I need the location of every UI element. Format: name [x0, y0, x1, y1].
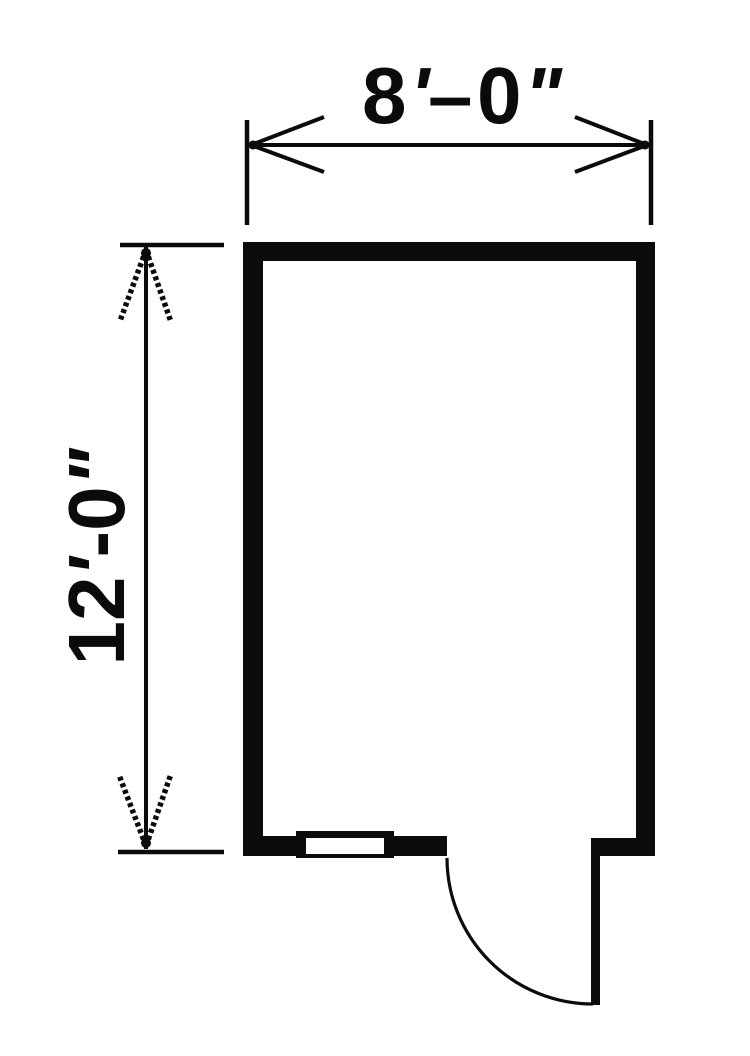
svg-text:8'–0": 8'–0": [362, 51, 563, 140]
svg-text:12'-0": 12'-0": [52, 447, 141, 665]
